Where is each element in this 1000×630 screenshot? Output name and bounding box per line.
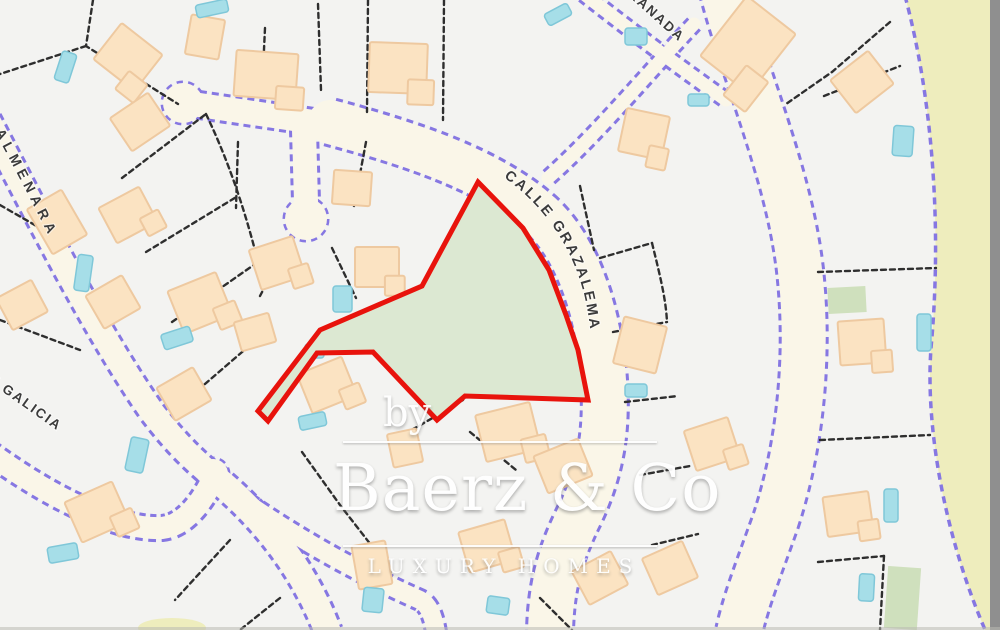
building-wing	[275, 86, 304, 111]
pool	[858, 574, 874, 602]
pool	[917, 314, 931, 351]
pool	[688, 94, 709, 106]
pool	[892, 125, 914, 156]
building-footprint	[351, 540, 392, 589]
building	[332, 170, 372, 207]
building-wing	[871, 350, 893, 373]
pool	[486, 596, 510, 616]
building	[185, 14, 225, 59]
culdesac-bulb	[285, 198, 327, 240]
right-border	[990, 0, 1000, 630]
green-parcel	[884, 566, 921, 630]
pool	[333, 286, 352, 312]
building	[351, 540, 392, 589]
building-footprint	[185, 14, 225, 59]
road	[304, 130, 306, 202]
building	[387, 428, 423, 467]
map-canvas: ALMENARA E GALICIA RANADA CALLE GRAZALEM…	[0, 0, 1000, 630]
culdesac-bulb	[198, 459, 228, 489]
building-wing	[407, 79, 434, 105]
pool	[884, 489, 898, 522]
map-screenshot: ALMENARA E GALICIA RANADA CALLE GRAZALEM…	[0, 0, 1000, 630]
pool	[625, 384, 647, 397]
building-wing	[498, 547, 525, 573]
building-footprint	[332, 170, 372, 207]
pool	[362, 587, 384, 613]
building-footprint	[387, 428, 423, 467]
green-parcel	[827, 286, 866, 314]
building-wing	[645, 145, 669, 171]
parcel-line	[443, 0, 444, 120]
building-wing	[857, 519, 880, 542]
pool	[625, 28, 647, 45]
culdesac-bulb	[163, 83, 203, 123]
